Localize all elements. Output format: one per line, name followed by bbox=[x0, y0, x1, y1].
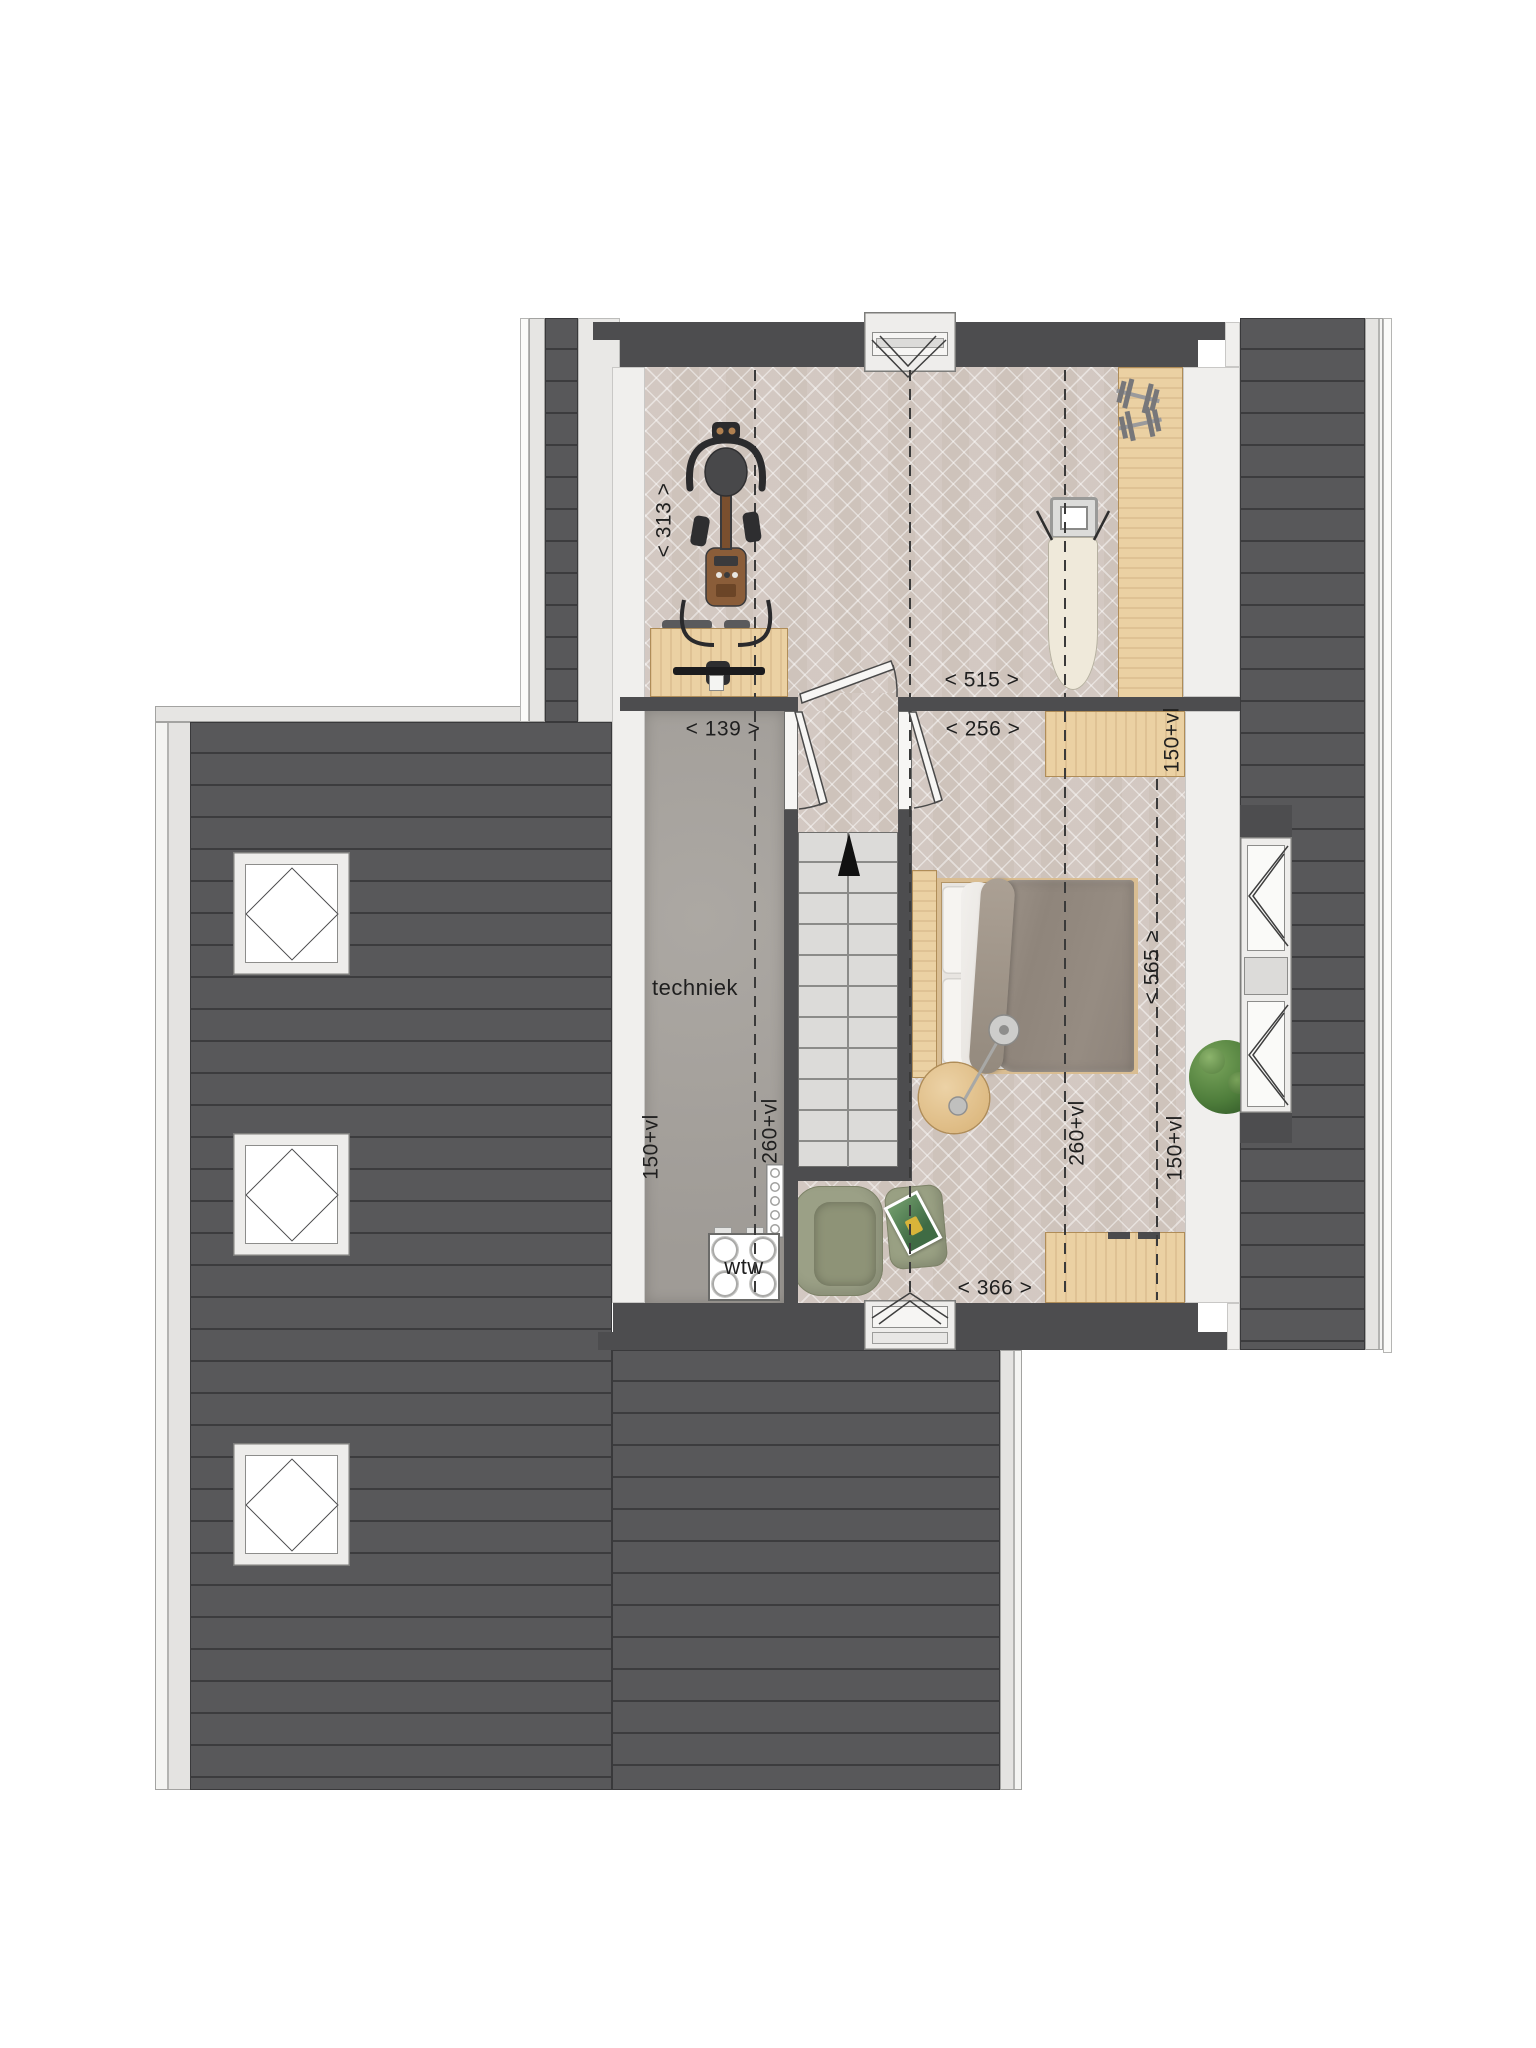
dim-bedroom-depth: < 565 > bbox=[1142, 930, 1163, 1005]
dim-bedroom-width: < 366 > bbox=[958, 1278, 1033, 1299]
wtw-label: wtw bbox=[724, 1256, 763, 1278]
stair-wall-south bbox=[798, 1167, 898, 1181]
plant-leaves bbox=[1199, 1048, 1225, 1074]
dim-gym-depth: < 313 > bbox=[654, 483, 675, 558]
armchair-seat bbox=[814, 1202, 876, 1286]
ironing-board bbox=[1048, 537, 1098, 690]
bottom-roof-edge-trim bbox=[1000, 1350, 1022, 1790]
bedroom-desk-bottom bbox=[1045, 1232, 1185, 1303]
roof-window-bottom bbox=[864, 1300, 956, 1350]
bedroom-bay-window bbox=[1240, 837, 1292, 1113]
window-pane bbox=[1247, 1001, 1285, 1107]
dim-headroom-left: 260+vl bbox=[760, 1098, 781, 1163]
monitor bbox=[673, 667, 765, 675]
bay-wall-bottom bbox=[1240, 1113, 1292, 1143]
middle-wall-left bbox=[620, 697, 784, 711]
dim-knee-wall-top-right: 150+vl bbox=[1162, 707, 1183, 772]
iron bbox=[1060, 506, 1088, 530]
desk-accessory bbox=[1138, 1232, 1160, 1239]
attic-floor-plan: wtw bbox=[0, 0, 1536, 2048]
bottom-wall-step-left bbox=[598, 1332, 613, 1350]
window-pane bbox=[1247, 845, 1285, 951]
dim-headroom-right: 260+vl bbox=[1067, 1100, 1088, 1165]
bottom-wall-step-right bbox=[1198, 1332, 1227, 1350]
window-mullion bbox=[1244, 957, 1288, 995]
top-wall-step-right bbox=[1198, 322, 1227, 340]
door-opening-techniek bbox=[784, 711, 798, 810]
dim-techniek-width: < 139 > bbox=[686, 719, 761, 740]
top-wall-step bbox=[593, 322, 620, 340]
right-wall-upper bbox=[1183, 367, 1240, 697]
top-wall-end bbox=[1225, 322, 1240, 367]
bed bbox=[937, 878, 1138, 1074]
dim-knee-wall-techniek: 150+vl bbox=[641, 1114, 662, 1179]
door-opening-bedroom bbox=[898, 711, 912, 810]
roof-window-diamond-2 bbox=[233, 1133, 350, 1256]
radiator bbox=[766, 1164, 784, 1238]
stairs-divider bbox=[847, 832, 849, 1167]
left-exterior-gutter bbox=[520, 318, 529, 722]
roof-window-diamond-3 bbox=[233, 1443, 350, 1566]
stairs bbox=[798, 832, 898, 1167]
techniek-room-floor bbox=[645, 711, 784, 1303]
dim-gym-width: < 515 > bbox=[945, 670, 1020, 691]
left-exterior-trim bbox=[529, 318, 545, 722]
room-label-techniek: techniek bbox=[652, 977, 738, 999]
left-roof-edge-trim bbox=[155, 722, 191, 1790]
right-roof-gutter bbox=[1383, 318, 1392, 1353]
dim-knee-wall-bottom-right: 150+vl bbox=[1165, 1115, 1186, 1180]
bottom-wall-end bbox=[1227, 1303, 1240, 1350]
right-wall-lower bbox=[1185, 711, 1240, 1303]
dim-landing-width: < 256 > bbox=[946, 719, 1021, 740]
roof-window-diamond-1 bbox=[233, 852, 350, 975]
landing-door-threshold bbox=[798, 693, 898, 713]
right-roof-edge-trim bbox=[1365, 318, 1383, 1350]
roof-window-top bbox=[864, 312, 956, 372]
bed-headboard bbox=[912, 870, 937, 1078]
bay-wall-top bbox=[1240, 805, 1292, 837]
desk-accessory bbox=[1108, 1232, 1130, 1239]
left-exterior-roof-strip bbox=[545, 318, 578, 722]
keyboard bbox=[710, 676, 723, 690]
wtw-unit: wtw bbox=[708, 1233, 780, 1301]
gym-bench bbox=[1118, 367, 1183, 707]
bottom-roof-panel bbox=[612, 1350, 1000, 1790]
middle-wall-right bbox=[898, 697, 1240, 711]
side-table bbox=[919, 1063, 989, 1133]
